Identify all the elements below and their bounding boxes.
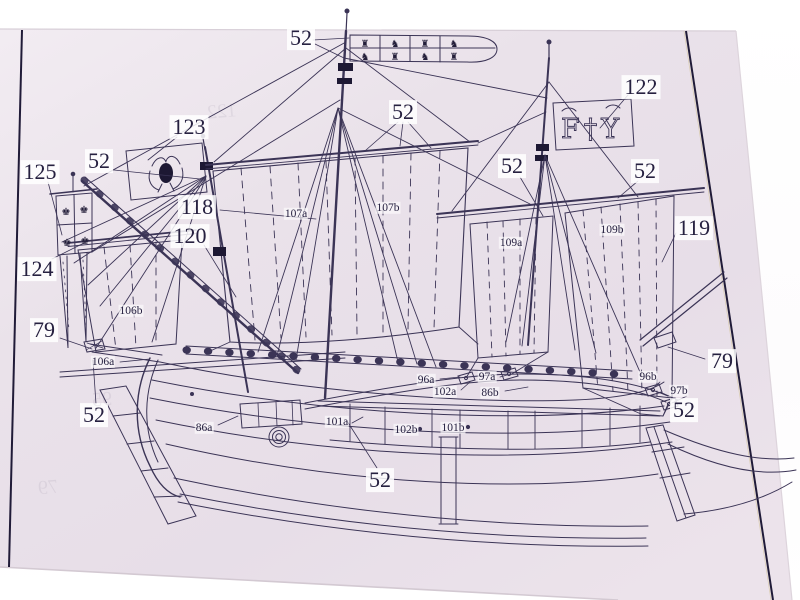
standard-symbol: ♜ bbox=[421, 39, 430, 50]
ship-plan-drawing: ♜ ♞ ♜ ♞ ♞ ♜ ♞ ♜ F†Y bbox=[0, 0, 800, 600]
standard-symbol: ♜ bbox=[391, 52, 400, 63]
crown-symbol: ♚ bbox=[63, 238, 72, 249]
photo-of-plan-sheet: ♜ ♞ ♜ ♞ ♞ ♜ ♞ ♜ F†Y bbox=[0, 0, 800, 600]
crown-symbol: ♚ bbox=[80, 205, 89, 216]
standard-symbol: ♜ bbox=[361, 39, 370, 50]
crown-symbol: ♚ bbox=[81, 236, 90, 247]
fy-flag-text: F†Y bbox=[561, 114, 623, 145]
standard-symbol: ♞ bbox=[391, 39, 400, 50]
standard-symbol: ♞ bbox=[450, 39, 459, 50]
standard-symbol: ♜ bbox=[450, 52, 459, 63]
standard-symbol: ♞ bbox=[421, 52, 430, 63]
crown-symbol: ♚ bbox=[62, 207, 71, 218]
